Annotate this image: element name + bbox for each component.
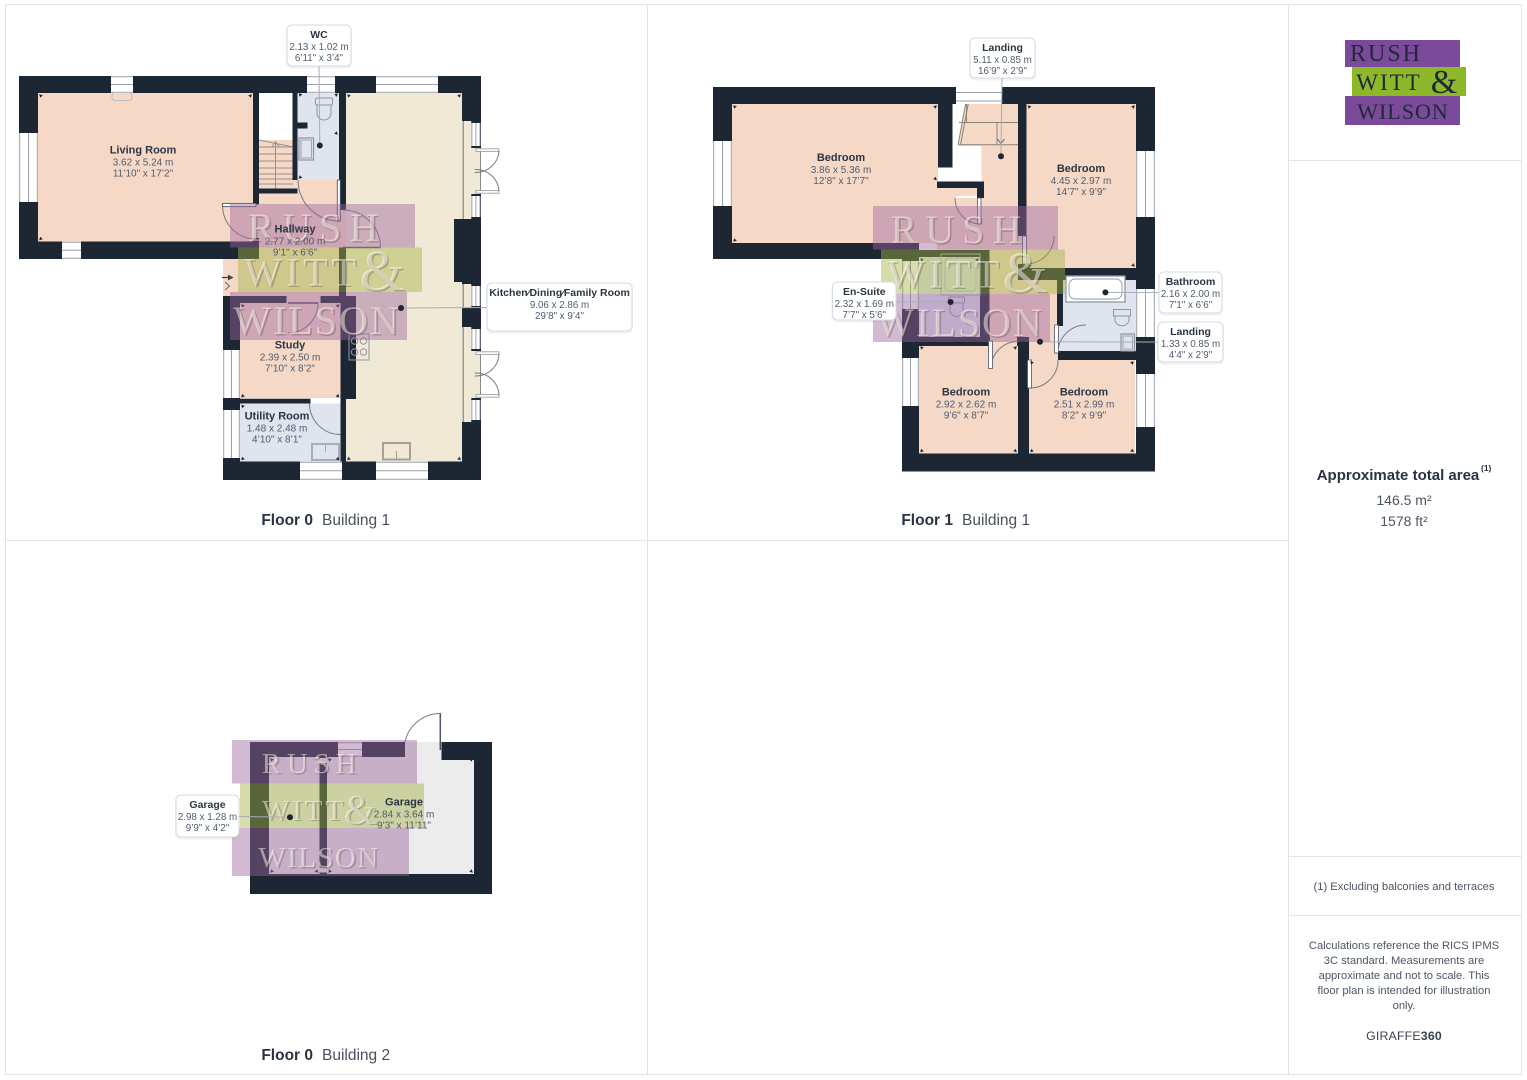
svg-text:9’6" x 8’7": 9’6" x 8’7": [944, 411, 989, 422]
svg-text:(1) Excluding balconies and te: (1) Excluding balconies and terraces: [1314, 881, 1495, 893]
svg-text:2.13 x 1.02 m: 2.13 x 1.02 m: [289, 42, 348, 53]
svg-text:(1): (1): [1481, 463, 1492, 473]
svg-text:Approximate total area: Approximate total area: [1317, 467, 1480, 484]
svg-text:Floor 0: Floor 0: [261, 1047, 313, 1064]
svg-text:2.84 x 3.64 m: 2.84 x 3.64 m: [374, 810, 435, 821]
svg-text:8’2" x 9’9": 8’2" x 9’9": [1062, 411, 1107, 422]
svg-text:RUSH: RUSH: [262, 748, 363, 780]
svg-text:only.: only.: [1393, 1000, 1416, 1012]
svg-text:&: &: [359, 238, 404, 303]
svg-text:Kitchen⁄Dining⁄Family Room: Kitchen⁄Dining⁄Family Room: [489, 287, 630, 299]
svg-text:2.92 x 2.62 m: 2.92 x 2.62 m: [936, 400, 997, 411]
svg-text:WITT: WITT: [1356, 70, 1421, 95]
svg-text:9’1" x 6’6": 9’1" x 6’6": [273, 248, 318, 259]
svg-text:29’8" x 9’4": 29’8" x 9’4": [535, 311, 584, 322]
svg-text:9’3" x 11’11": 9’3" x 11’11": [377, 821, 431, 832]
svg-text:9’9" x 4’2": 9’9" x 4’2": [186, 823, 230, 834]
svg-text:6’11" x 3’4": 6’11" x 3’4": [295, 53, 344, 64]
svg-text:Bedroom: Bedroom: [1057, 163, 1106, 175]
svg-text:1578 ft²: 1578 ft²: [1380, 513, 1428, 529]
svg-text:Building 2: Building 2: [322, 1047, 390, 1064]
svg-text:Garage: Garage: [385, 797, 423, 809]
svg-text:7’1" x 6’6": 7’1" x 6’6": [1169, 300, 1213, 311]
svg-text:Utility Room: Utility Room: [245, 411, 310, 423]
svg-text:11’10" x 17’2": 11’10" x 17’2": [113, 169, 174, 180]
svg-text:3.62 x 5.24 m: 3.62 x 5.24 m: [113, 158, 174, 169]
svg-text:Building 1: Building 1: [322, 512, 390, 529]
svg-text:&: &: [344, 788, 377, 834]
svg-text:Garage: Garage: [189, 799, 225, 811]
svg-text:16’9" x 2’9": 16’9" x 2’9": [978, 66, 1027, 77]
svg-text:1.33 x 0.85 m: 1.33 x 0.85 m: [1161, 339, 1220, 350]
svg-text:Hallway: Hallway: [275, 224, 317, 236]
svg-text:WILSON: WILSON: [876, 300, 1044, 345]
svg-text:5.11 x 0.85 m: 5.11 x 0.85 m: [973, 55, 1032, 66]
svg-text:GIRAFFE360: GIRAFFE360: [1366, 1029, 1442, 1043]
svg-text:14’7" x 9’9": 14’7" x 9’9": [1056, 187, 1106, 198]
svg-text:2.51 x 2.99 m: 2.51 x 2.99 m: [1054, 400, 1115, 411]
svg-text:WILSON: WILSON: [1357, 99, 1449, 124]
svg-text:Bathroom: Bathroom: [1166, 276, 1216, 288]
svg-text:12’8" x 17’7": 12’8" x 17’7": [813, 176, 869, 187]
svg-text:Bedroom: Bedroom: [1060, 387, 1109, 399]
svg-text:&: &: [1431, 64, 1457, 101]
svg-text:Bedroom: Bedroom: [817, 152, 866, 164]
svg-text:WITT: WITT: [887, 252, 1003, 297]
svg-text:Floor 1: Floor 1: [901, 512, 953, 529]
svg-text:Building 1: Building 1: [962, 512, 1030, 529]
svg-text:WC: WC: [310, 29, 328, 41]
svg-text:3C standard. Measurements are: 3C standard. Measurements are: [1324, 955, 1484, 967]
svg-text:WILSON: WILSON: [258, 842, 379, 874]
svg-text:WILSON: WILSON: [233, 298, 401, 343]
svg-text:Calculations reference the RIC: Calculations reference the RICS IPMS: [1309, 940, 1499, 952]
svg-text:WITT: WITT: [262, 795, 346, 827]
svg-text:approximate and not to scale.: approximate and not to scale. This: [1319, 970, 1490, 982]
svg-text:2.32 x 1.69 m: 2.32 x 1.69 m: [835, 299, 894, 310]
svg-text:&: &: [1002, 240, 1047, 305]
svg-text:7’7" x 5’6": 7’7" x 5’6": [843, 310, 887, 321]
svg-text:7’10" x 8’2": 7’10" x 8’2": [265, 364, 315, 375]
svg-text:4’4" x 2’9": 4’4" x 2’9": [1169, 350, 1213, 361]
svg-text:4’10" x 8’1": 4’10" x 8’1": [252, 435, 302, 446]
svg-text:Landing: Landing: [1170, 326, 1211, 338]
svg-text:Floor 0: Floor 0: [261, 512, 313, 529]
svg-text:1.48 x 2.48 m: 1.48 x 2.48 m: [247, 424, 308, 435]
svg-text:2.98 x 1.28 m: 2.98 x 1.28 m: [178, 812, 237, 823]
svg-text:2.39 x 2.50 m: 2.39 x 2.50 m: [260, 353, 321, 364]
svg-text:RUSH: RUSH: [1350, 41, 1422, 67]
svg-text:Study: Study: [275, 340, 306, 352]
svg-text:3.86 x 5.36 m: 3.86 x 5.36 m: [811, 165, 872, 176]
svg-text:9.06 x 2.86 m: 9.06 x 2.86 m: [530, 300, 589, 311]
svg-text:Landing: Landing: [982, 42, 1023, 54]
svg-text:floor plan is intended for ill: floor plan is intended for illustration: [1318, 985, 1491, 997]
svg-text:2.77 x 2.00 m: 2.77 x 2.00 m: [265, 237, 326, 248]
svg-text:Bedroom: Bedroom: [942, 387, 991, 399]
svg-text:Living Room: Living Room: [110, 145, 177, 157]
svg-text:4.45 x 2.97 m: 4.45 x 2.97 m: [1051, 176, 1112, 187]
svg-text:En-Suite: En-Suite: [843, 286, 886, 298]
svg-text:2.16 x 2.00 m: 2.16 x 2.00 m: [1161, 289, 1220, 300]
svg-text:146.5 m²: 146.5 m²: [1376, 492, 1432, 508]
